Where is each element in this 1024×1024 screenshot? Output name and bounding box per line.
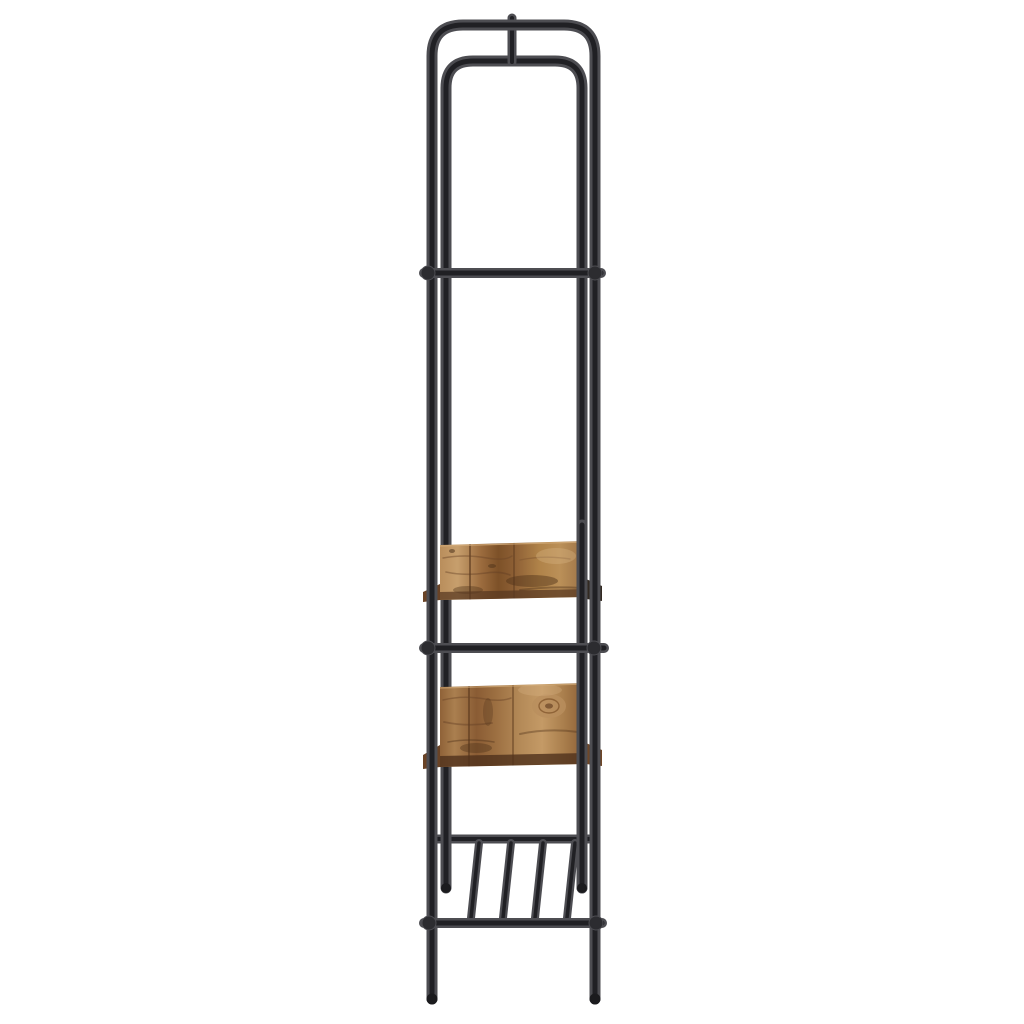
bottom-rack-slat <box>567 843 575 918</box>
rail-joint-knob <box>421 266 435 280</box>
bottom-rack-slat <box>535 843 543 918</box>
inner-arch-frame <box>441 61 587 893</box>
bottom-crossbar <box>422 916 603 930</box>
middle-crossbar <box>421 641 604 655</box>
bottom-rack-slat <box>503 843 511 918</box>
inner-right-tube-front <box>577 525 587 893</box>
right-foot <box>590 994 601 1005</box>
rail-joint-knob <box>588 266 602 280</box>
slatted-bottom-rack <box>436 839 592 918</box>
left-foot <box>427 994 438 1005</box>
lower-wood-shelf <box>423 682 602 769</box>
rail-joint-knob <box>589 916 603 930</box>
product-photo <box>0 0 1024 1024</box>
upper-crossbar <box>421 266 602 280</box>
rail-joint-knob <box>421 641 435 655</box>
rail-joint-knob <box>422 916 436 930</box>
upper-wood-shelf <box>423 540 602 602</box>
inner-tube-end-cap <box>441 883 451 893</box>
rail-joint-knob <box>587 641 601 655</box>
bottom-rack-slat <box>471 843 479 918</box>
clothes-rack-illustration <box>0 0 1024 1024</box>
